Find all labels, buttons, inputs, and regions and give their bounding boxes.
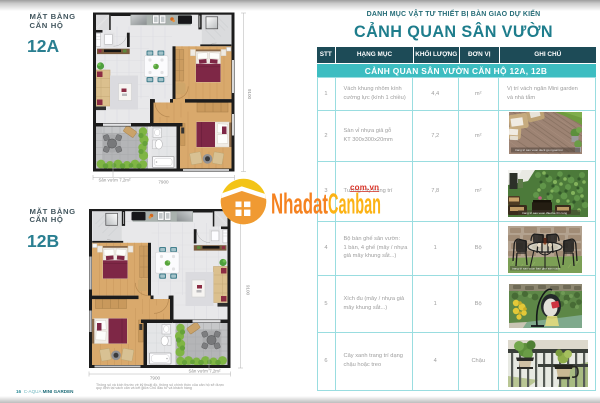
svg-text:9100: 9100 (246, 285, 251, 296)
svg-text:Sân vườn 7,2m²: Sân vườn 7,2m² (189, 369, 221, 374)
svg-text:Sân vườn 7,2m²: Sân vườn 7,2m² (99, 178, 131, 183)
svg-text:Nhadat: Nhadat (271, 189, 328, 221)
svg-text:trang tri san vuon deck go ngo: trang tri san vuon deck go ngoai troi (515, 148, 563, 152)
svg-text:trang tri san vuon ban ghe san: trang tri san vuon ban ghe san vuon (512, 267, 560, 271)
svg-text:7900: 7900 (150, 376, 161, 381)
svg-text:7900: 7900 (158, 180, 169, 185)
svg-text:Canban: Canban (328, 189, 381, 221)
svg-text:trang tri san vuon thiet ke th: trang tri san vuon thiet ke thi cong (522, 210, 567, 214)
svg-text:com.vn: com.vn (350, 183, 379, 192)
svg-text:9100: 9100 (247, 89, 252, 100)
